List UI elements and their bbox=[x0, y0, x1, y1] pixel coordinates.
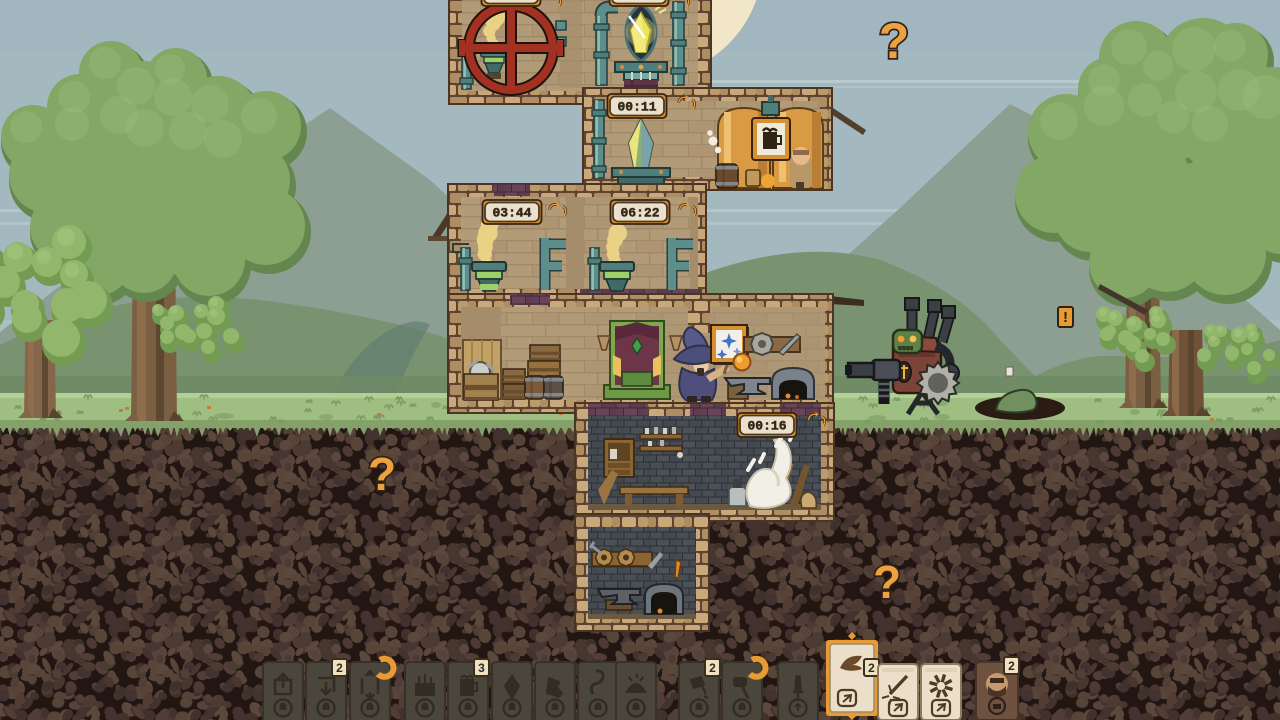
svg-text:?: ? bbox=[873, 556, 901, 608]
svg-text:3: 3 bbox=[478, 661, 485, 675]
svg-text:!: ! bbox=[1063, 309, 1068, 326]
svg-text:2: 2 bbox=[709, 661, 716, 675]
svg-text:?: ? bbox=[368, 448, 396, 500]
svg-text:2: 2 bbox=[1008, 659, 1015, 673]
svg-text:00:11: 00:11 bbox=[617, 100, 656, 115]
svg-text:06:22: 06:22 bbox=[620, 206, 659, 221]
svg-text:2: 2 bbox=[868, 661, 875, 675]
svg-text:?: ? bbox=[879, 13, 910, 69]
svg-text:03:44: 03:44 bbox=[492, 206, 531, 221]
svg-text:00:20: 00:20 bbox=[491, 0, 530, 3]
svg-text:00:17: 00:17 bbox=[619, 0, 658, 3]
svg-text:00:16: 00:16 bbox=[747, 419, 786, 434]
svg-text:2: 2 bbox=[336, 661, 343, 675]
